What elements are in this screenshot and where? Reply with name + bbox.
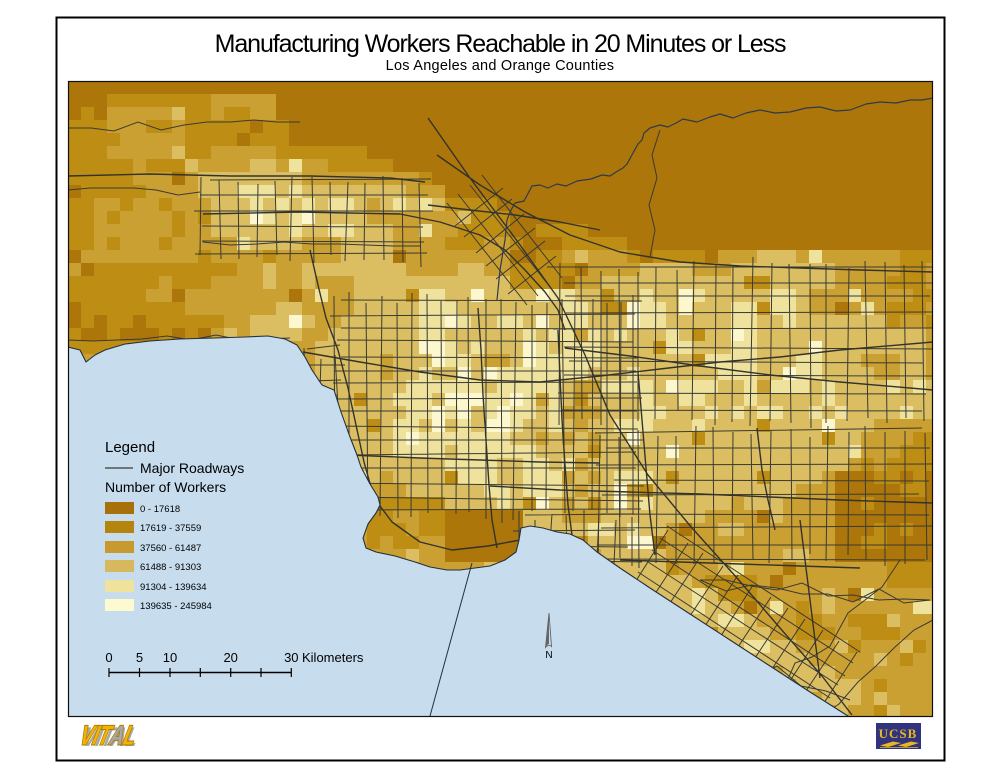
svg-text:61488 - 91303: 61488 - 91303: [140, 562, 201, 573]
svg-text:10: 10: [163, 650, 177, 665]
svg-text:N: N: [545, 650, 552, 661]
svg-text:UCSB: UCSB: [879, 726, 918, 741]
svg-text:17619 - 37559: 17619 - 37559: [140, 523, 201, 534]
svg-text:Number of Workers: Number of Workers: [105, 479, 226, 495]
svg-text:5: 5: [136, 650, 143, 665]
svg-text:0 - 17618: 0 - 17618: [140, 504, 180, 515]
svg-text:30: 30: [284, 650, 298, 665]
svg-text:91304 - 139634: 91304 - 139634: [140, 582, 207, 593]
svg-text:Legend: Legend: [105, 439, 155, 456]
svg-text:Kilometers: Kilometers: [302, 650, 364, 665]
svg-text:20: 20: [223, 650, 237, 665]
svg-text:VITAL: VITAL: [77, 720, 140, 751]
svg-text:Manufacturing Workers Reachabl: Manufacturing Workers Reachable in 20 Mi…: [215, 30, 786, 58]
svg-text:0: 0: [105, 650, 112, 665]
svg-text:139635 - 245984: 139635 - 245984: [140, 601, 212, 612]
svg-text:Major Roadways: Major Roadways: [140, 460, 244, 476]
svg-text:37560 - 61487: 37560 - 61487: [140, 543, 201, 554]
svg-text:Los Angeles and Orange Countie: Los Angeles and Orange Counties: [386, 58, 615, 74]
